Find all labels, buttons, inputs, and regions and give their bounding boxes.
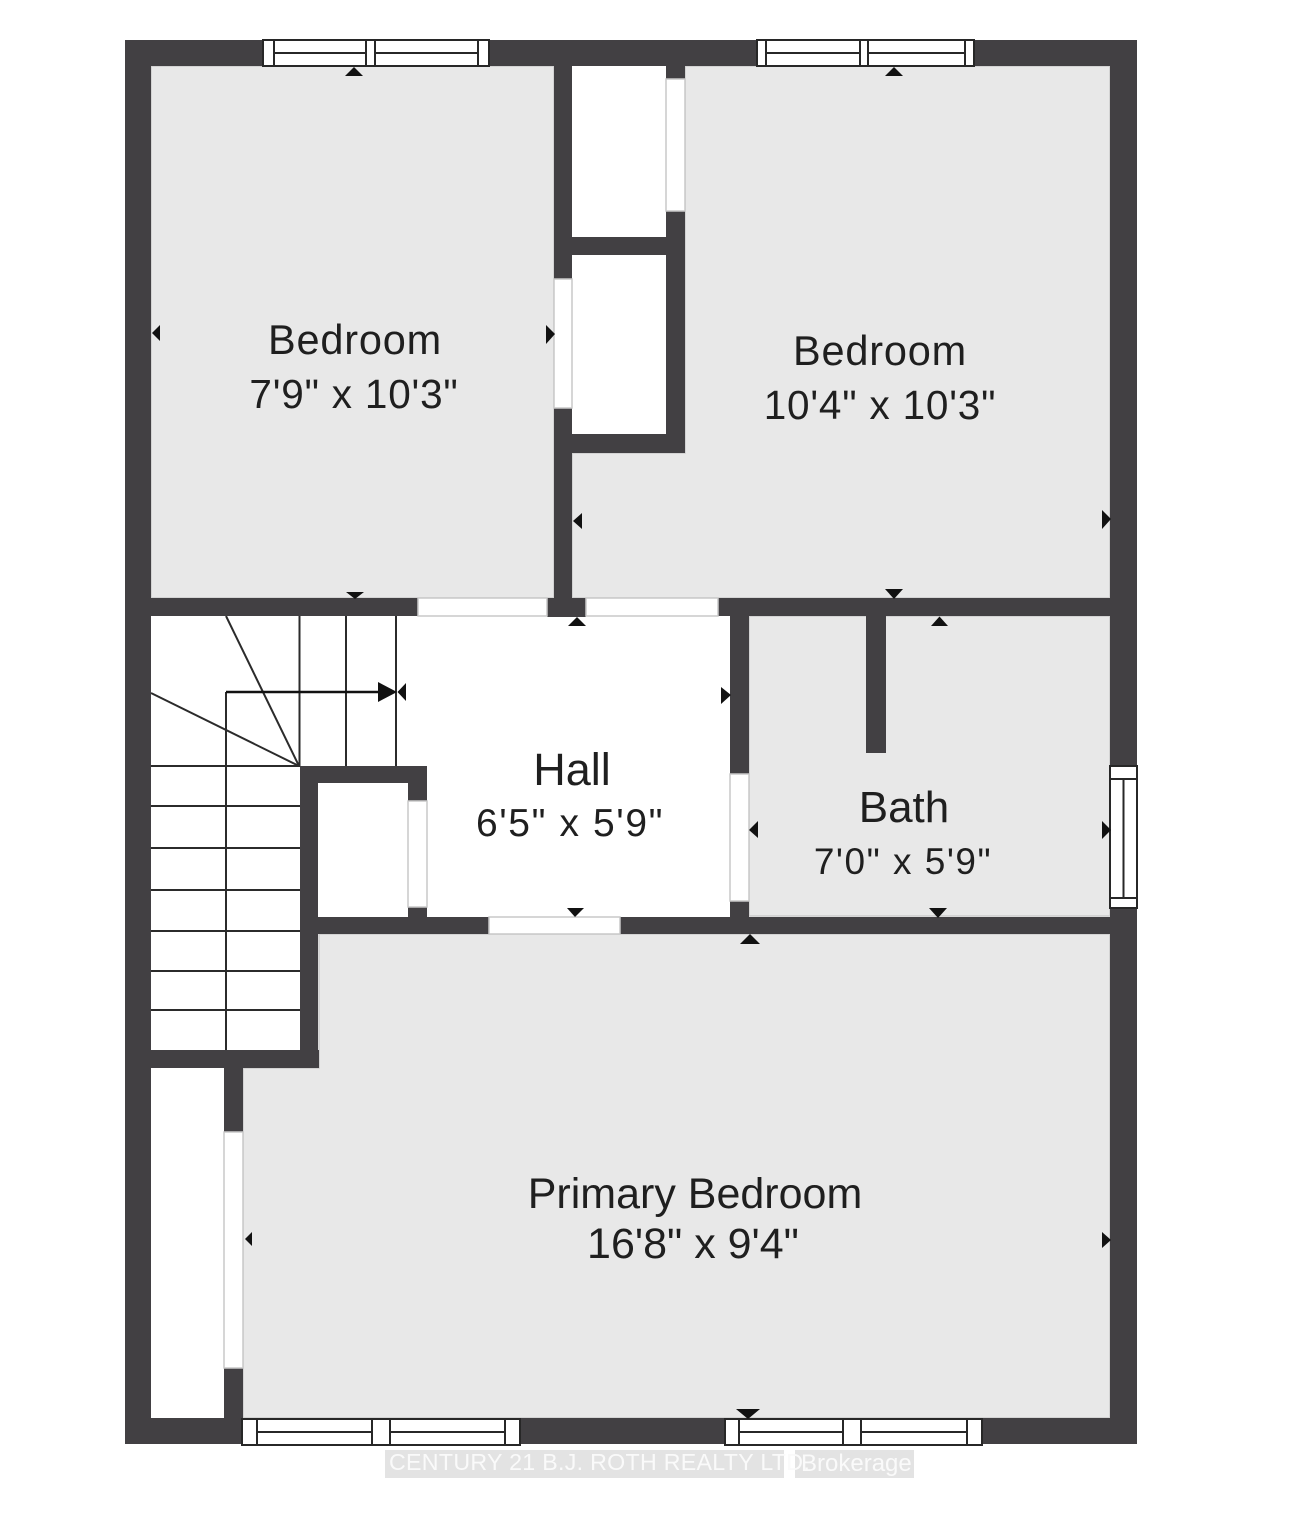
svg-text:Bath: Bath — [859, 783, 950, 832]
svg-text:Primary Bedroom: Primary Bedroom — [528, 1170, 863, 1218]
svg-text:CENTURY 21 B.J. ROTH REALTY LT: CENTURY 21 B.J. ROTH REALTY LTD. — [389, 1449, 810, 1475]
svg-text:7'9" x 10'3": 7'9" x 10'3" — [249, 371, 458, 417]
svg-text:Brokerage: Brokerage — [801, 1450, 912, 1477]
svg-text:7'0" x 5'9": 7'0" x 5'9" — [814, 841, 992, 882]
svg-text:Hall: Hall — [533, 744, 611, 795]
svg-text:10'4" x 10'3": 10'4" x 10'3" — [764, 382, 997, 428]
svg-text:16'8" x 9'4": 16'8" x 9'4" — [587, 1220, 799, 1268]
svg-text:6'5" x 5'9": 6'5" x 5'9" — [476, 802, 664, 845]
svg-text:Bedroom: Bedroom — [793, 327, 967, 374]
svg-text:Bedroom: Bedroom — [268, 316, 442, 363]
